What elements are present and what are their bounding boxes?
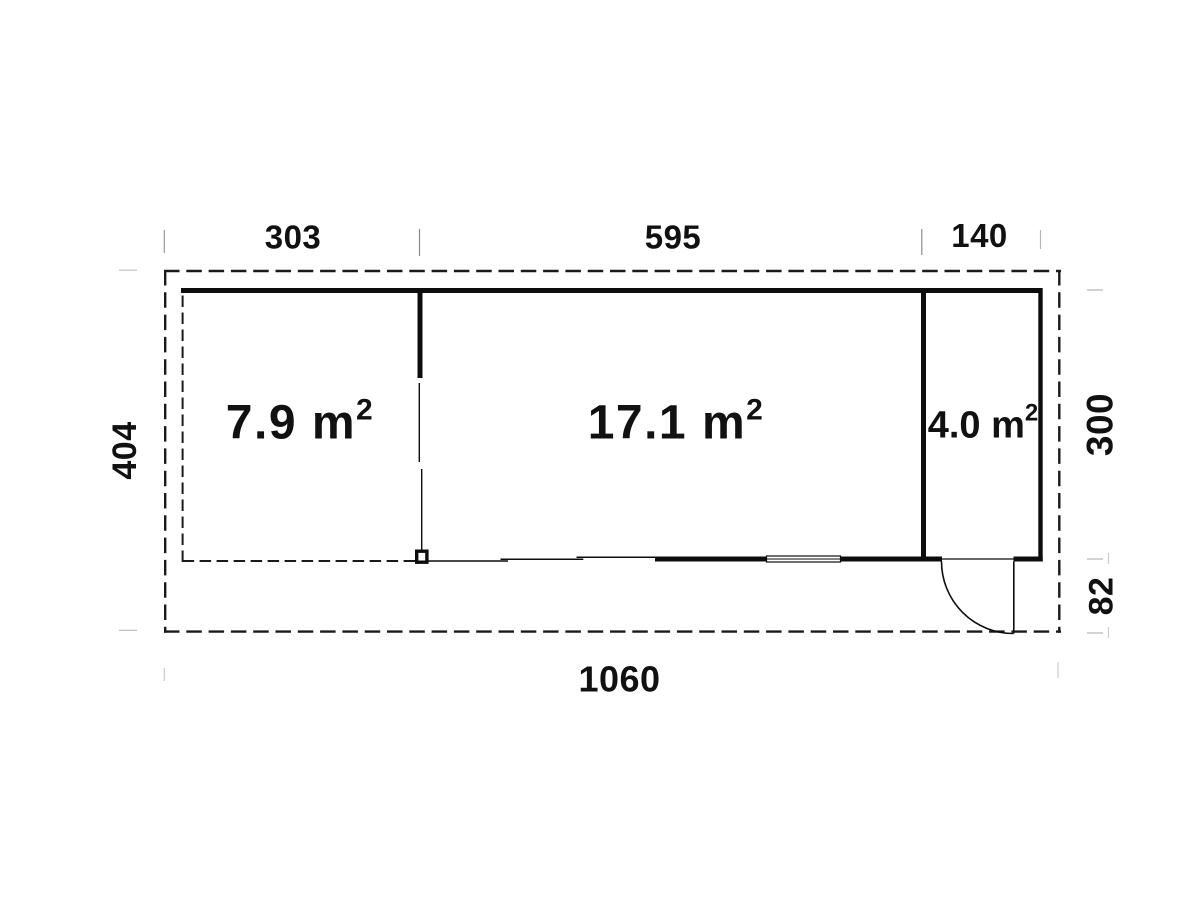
svg-text:4.0 m2: 4.0 m2 — [928, 400, 1039, 447]
svg-text:1060: 1060 — [578, 659, 660, 700]
svg-text:303: 303 — [265, 219, 322, 256]
svg-text:17.1 m2: 17.1 m2 — [588, 394, 765, 450]
svg-text:404: 404 — [106, 421, 144, 479]
svg-text:7.9 m2: 7.9 m2 — [226, 394, 374, 450]
svg-text:300: 300 — [1080, 393, 1121, 456]
svg-text:82: 82 — [1083, 577, 1121, 616]
svg-text:595: 595 — [645, 219, 702, 256]
svg-text:140: 140 — [951, 217, 1008, 254]
